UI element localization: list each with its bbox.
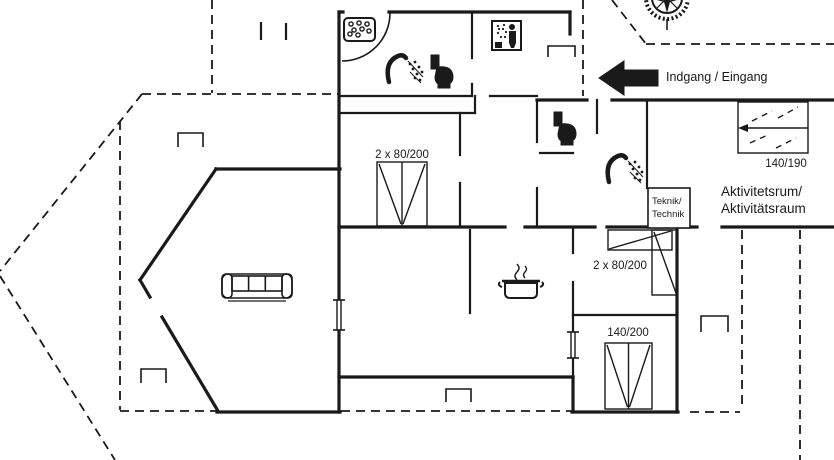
activity-room-label: Aktivitetsrum/ Aktivitätsraum	[721, 184, 806, 216]
bed-sofa-140-190	[738, 102, 808, 153]
activity-room-label-line1: Aktivitetsrum/	[721, 184, 802, 199]
toilet-icon	[554, 112, 576, 145]
tech-room: Teknik/ Technik	[648, 188, 690, 228]
entrance-label: Indgang / Eingang	[666, 70, 768, 84]
bracket-left-terrace	[141, 369, 166, 383]
whirlpool-icon	[344, 18, 375, 41]
bed-size-label: 140/200	[607, 327, 649, 339]
shower-cabin-icon	[492, 21, 521, 50]
bed-size-label: 140/190	[765, 158, 807, 170]
activity-room-label-line2: Aktivitätsraum	[721, 201, 806, 216]
floor-plan: Indgang / Eingang	[0, 0, 834, 460]
tech-room-label-line1: Teknik/	[652, 196, 682, 207]
toilet-icon	[431, 55, 453, 88]
entry-door-symbol	[548, 46, 575, 57]
bracket-top-terrace	[178, 133, 203, 147]
bed-size-label: 2 x 80/200	[375, 149, 429, 161]
compass-rose-icon	[646, 0, 688, 30]
window-left-wall	[333, 300, 345, 330]
door-swing-arc	[342, 13, 390, 61]
terrace-tick-marks	[261, 22, 286, 40]
window-symbols	[333, 300, 579, 358]
cooking-pot-icon	[499, 264, 543, 298]
shower-icon	[608, 155, 644, 183]
terrace-dashed-outline	[0, 0, 834, 460]
window-bedroom-wall	[567, 332, 579, 358]
shower-icon	[388, 55, 424, 83]
bracket-right-terrace	[701, 316, 728, 332]
entrance-arrow-icon	[599, 61, 658, 95]
entrance-indicator: Indgang / Eingang	[599, 61, 768, 95]
tech-room-label-line2: Technik	[652, 209, 684, 220]
bed-double-bottom	[605, 343, 652, 409]
bed-size-label: 2 x 80/200	[593, 260, 647, 272]
bed-double-top	[377, 162, 427, 226]
sofa-icon	[222, 274, 292, 301]
bracket-bottom-terrace	[446, 389, 471, 402]
